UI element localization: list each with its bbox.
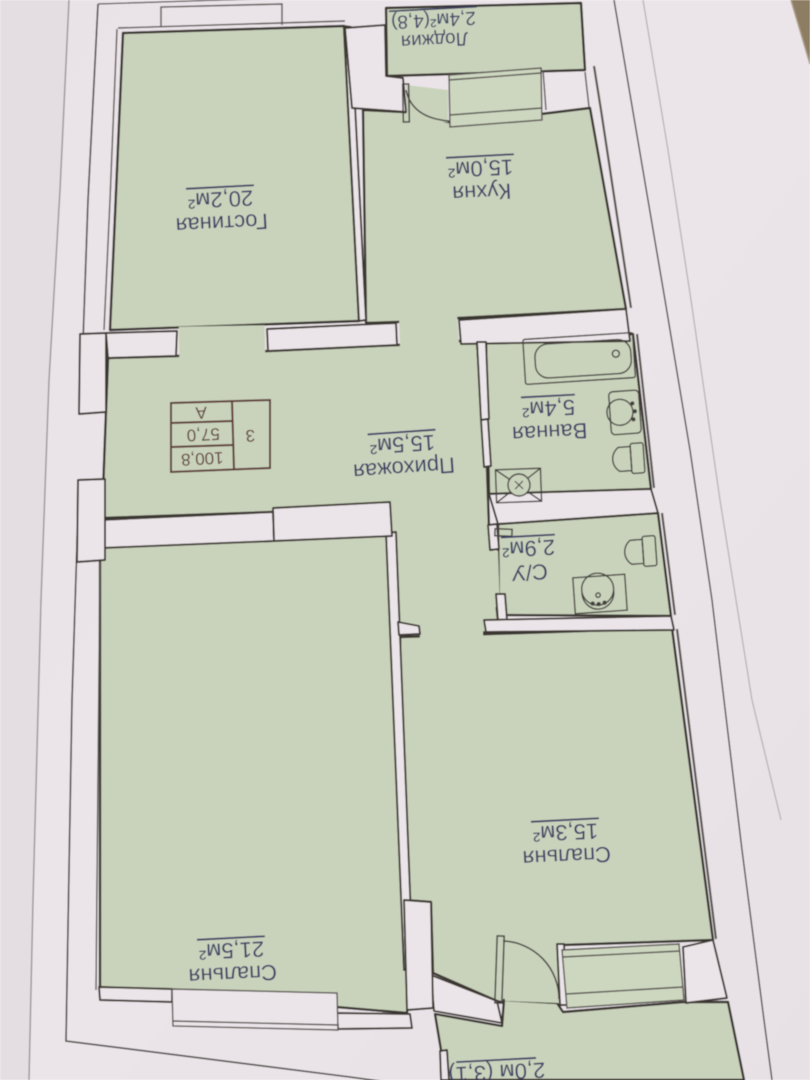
svg-text:100,8: 100,8 [181,448,224,469]
svg-text:15,0м²: 15,0м² [447,154,514,182]
svg-text:С/У: С/У [510,559,548,586]
svg-text:15,3м²: 15,3м² [532,818,599,846]
svg-text:А: А [194,403,207,423]
svg-text:57,0: 57,0 [186,424,220,445]
svg-text:5,4м²: 5,4м² [521,395,575,423]
svg-text:21,5м²: 21,5м² [198,936,265,964]
svg-text:3: 3 [245,426,255,445]
svg-text:20,2м²: 20,2м² [187,185,254,213]
svg-text:2,9м²: 2,9м² [501,535,555,563]
